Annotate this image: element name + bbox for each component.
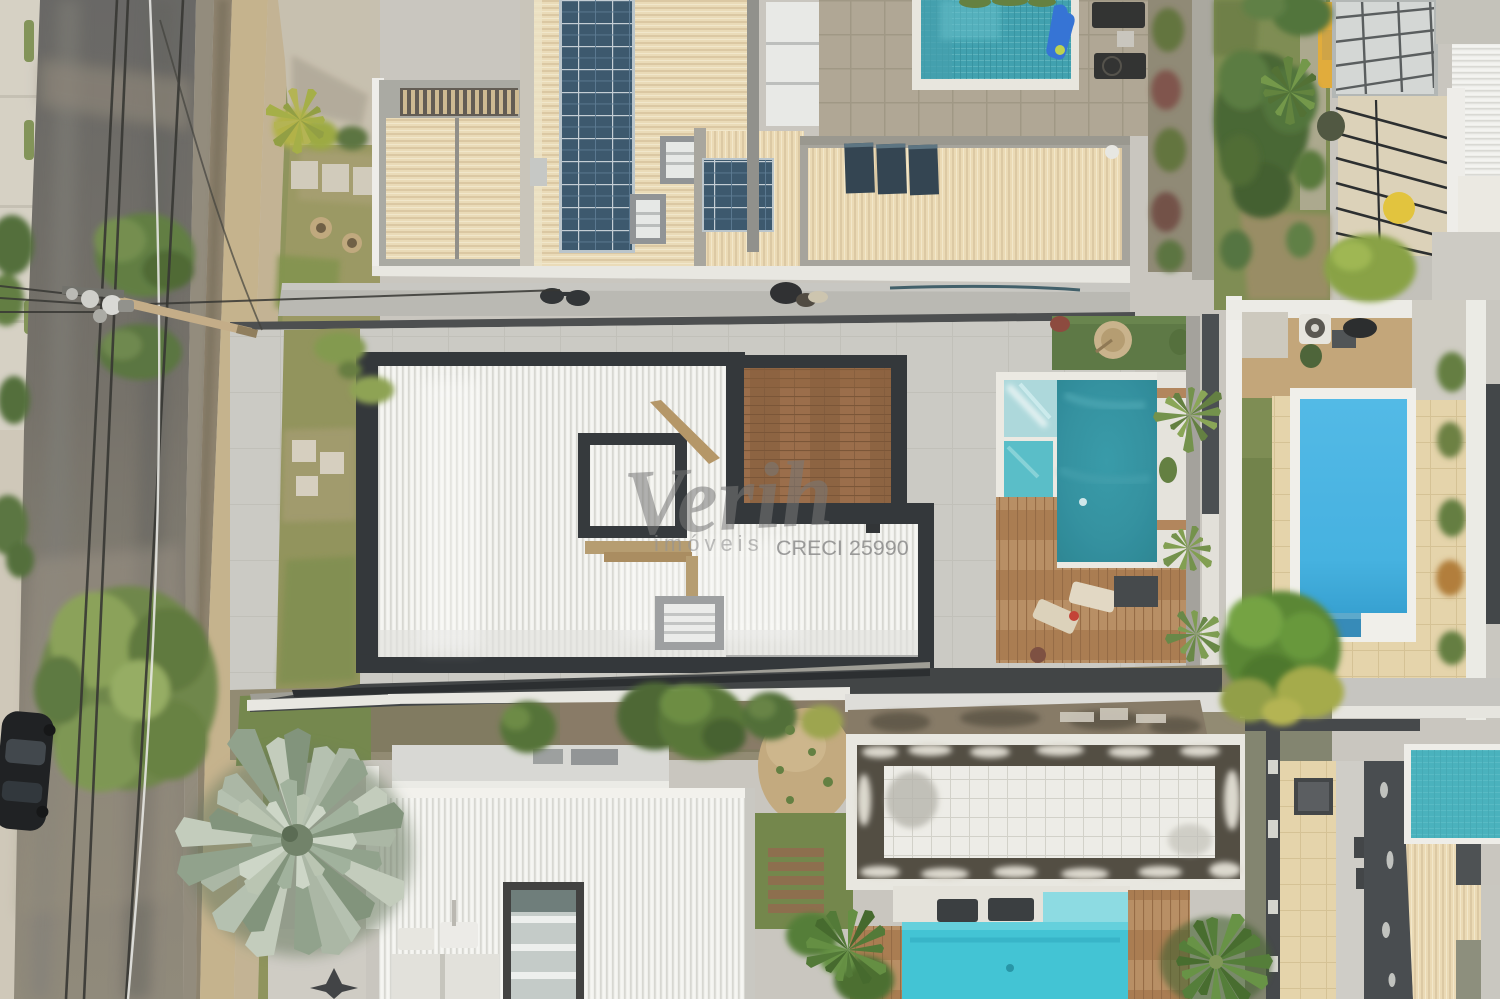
svg-text:imóveis: imóveis	[654, 531, 764, 556]
svg-text:CRECI 25990: CRECI 25990	[776, 536, 909, 560]
